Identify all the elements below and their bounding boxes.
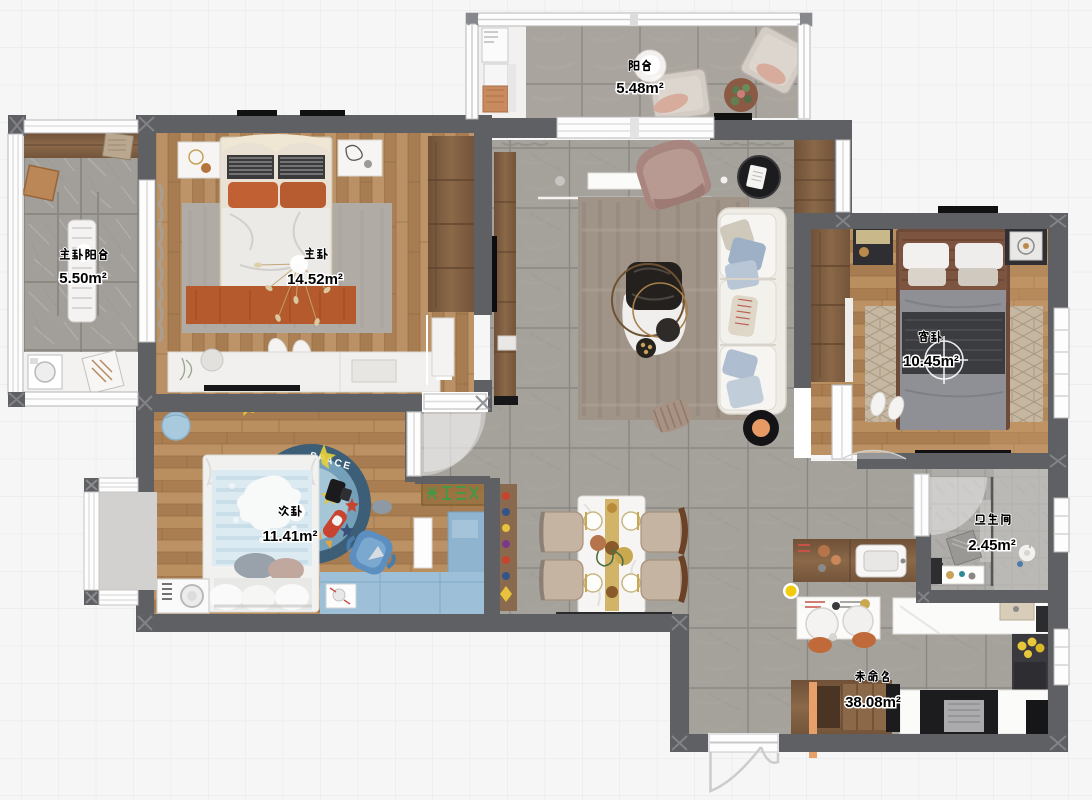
svg-text:11.41m²: 11.41m²: [262, 528, 317, 545]
svg-text:2.45m²: 2.45m²: [968, 537, 1016, 554]
svg-text:14.52m²: 14.52m²: [287, 271, 343, 288]
svg-text:5.50m²: 5.50m²: [59, 270, 107, 287]
svg-text:10.45m²: 10.45m²: [903, 353, 959, 370]
svg-text:5.48m²: 5.48m²: [616, 80, 664, 97]
svg-text:38.08m²: 38.08m²: [845, 694, 901, 711]
